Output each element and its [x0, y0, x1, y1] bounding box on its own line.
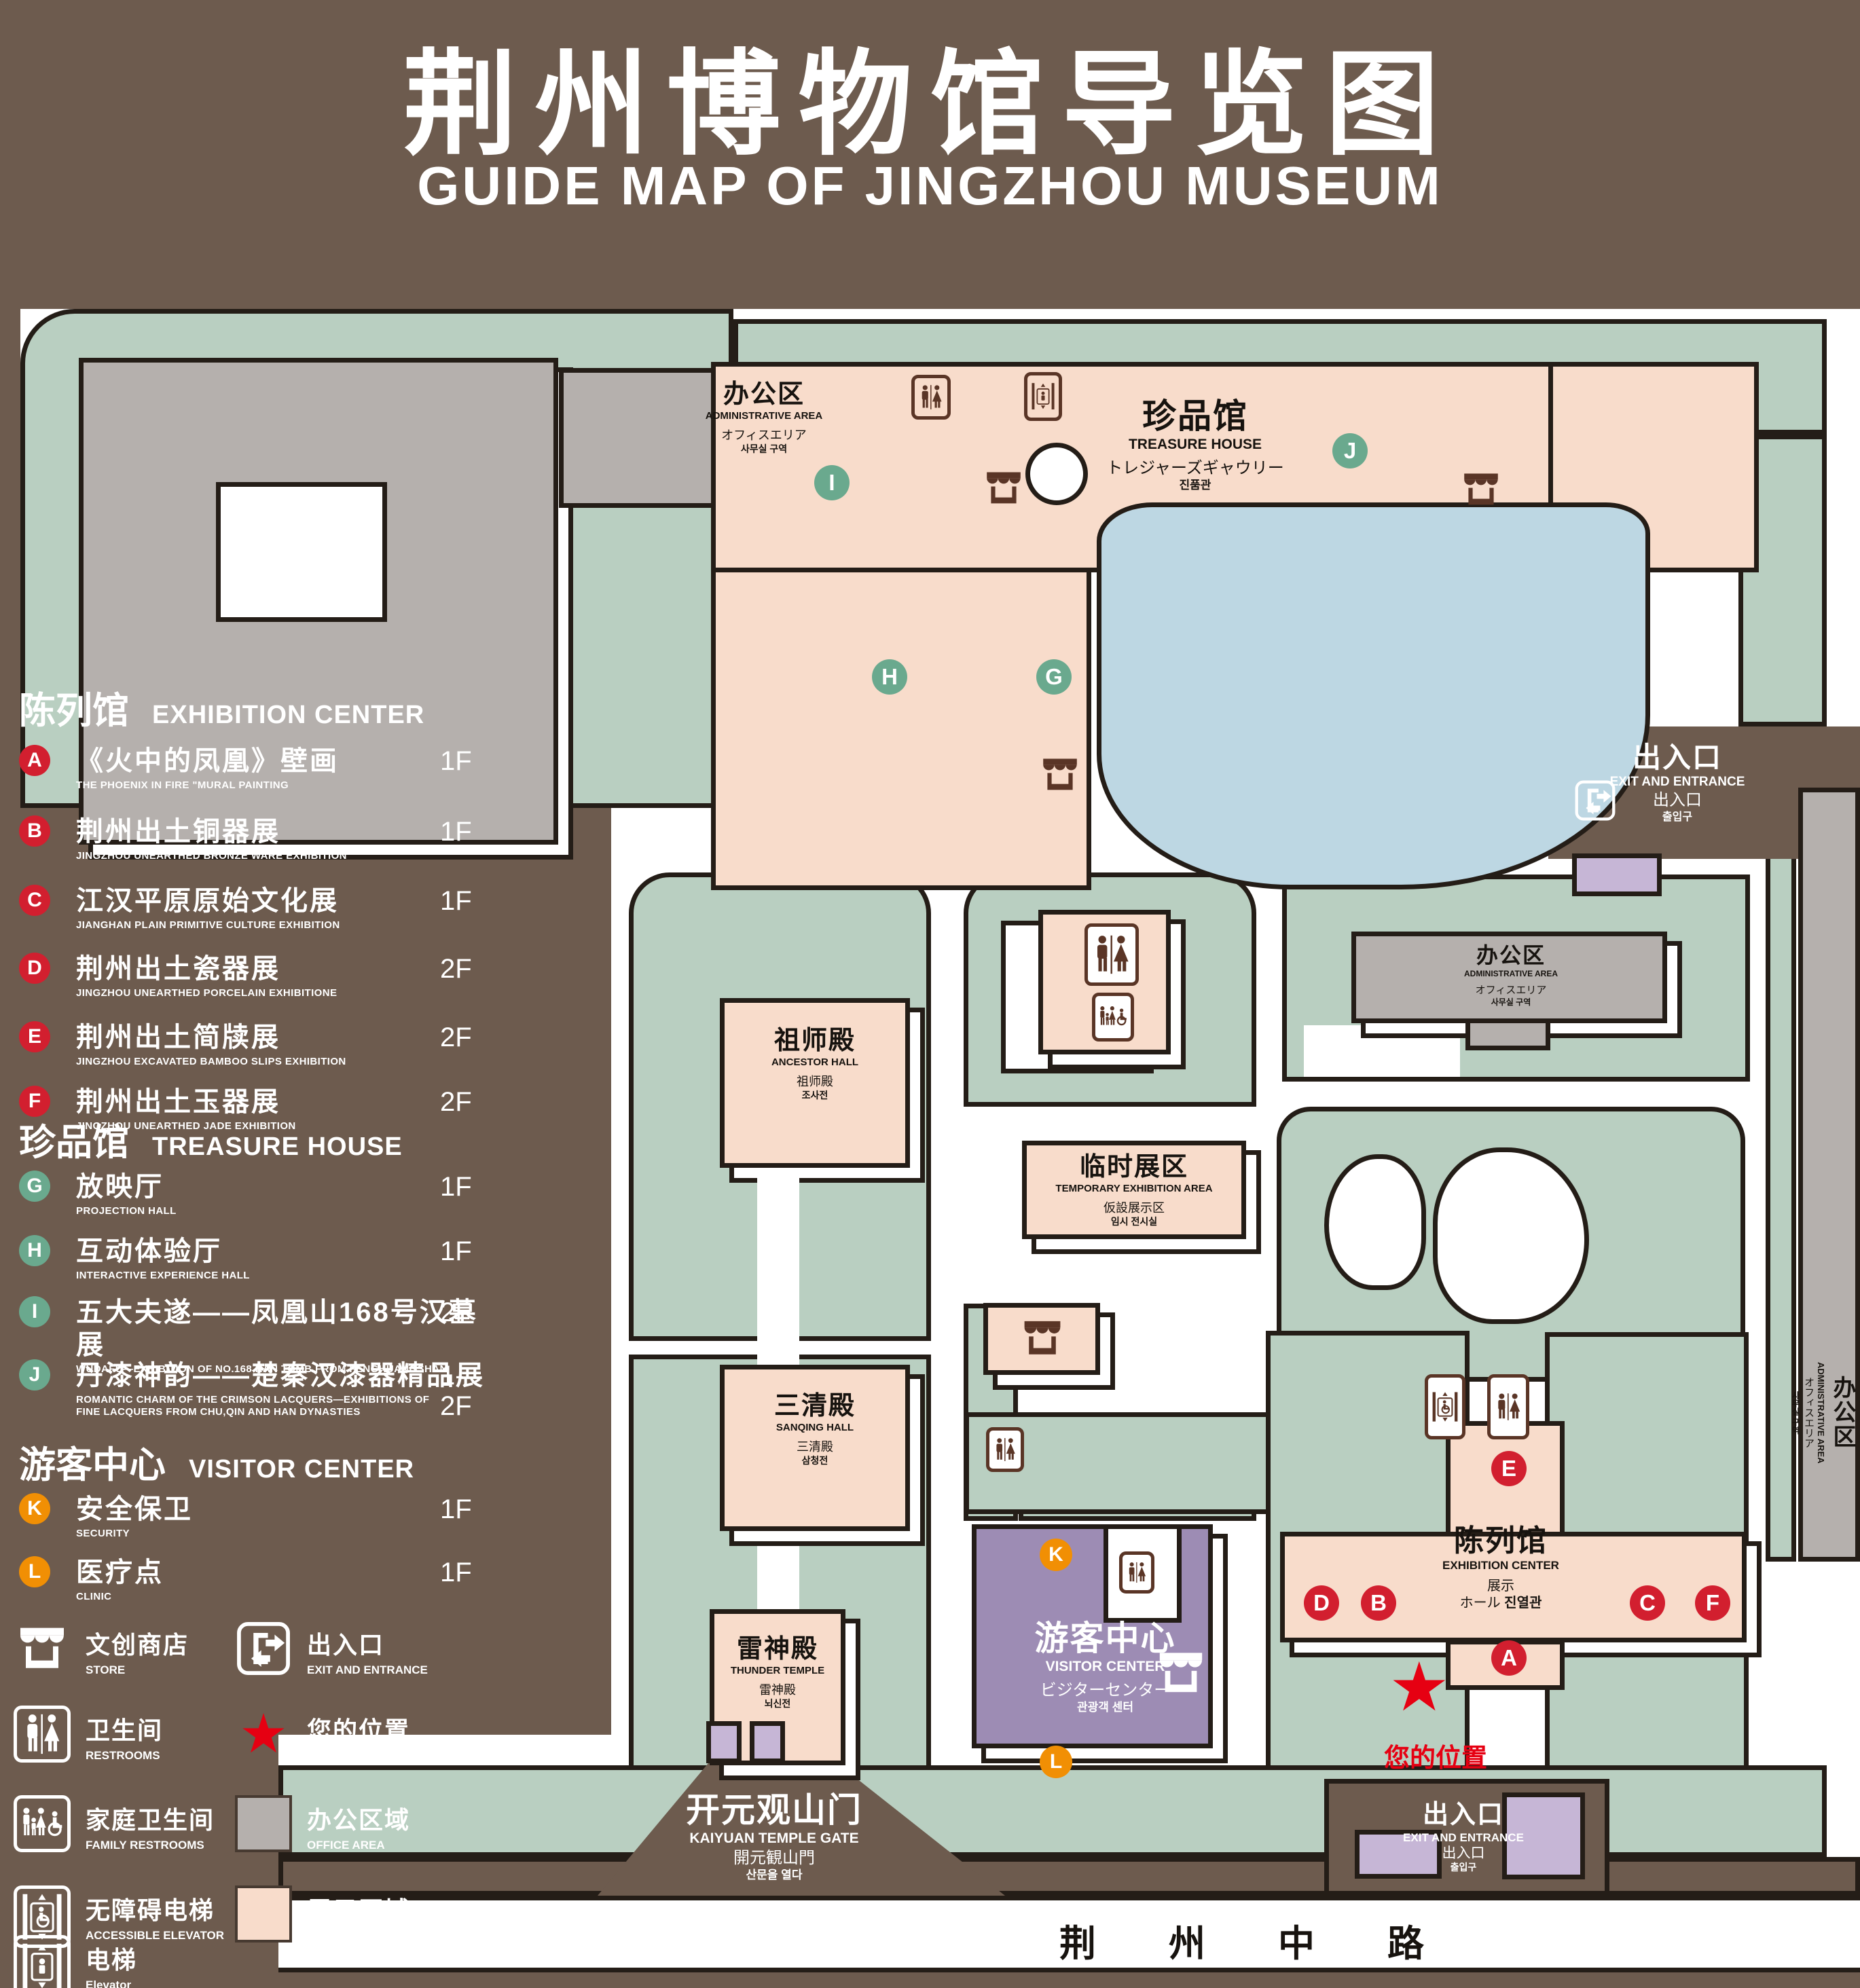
- exit-icon: [235, 1620, 292, 1677]
- lawn-admin-mid-courtyard: [1304, 1025, 1460, 1077]
- legend-item-G: G 放映厅PROJECTION HALL 1F: [19, 1171, 494, 1217]
- map-marker-K: K: [1040, 1539, 1072, 1571]
- legend-item-E: E 荆州出土简牍展JINGZHOU EXCAVATED BAMBOO SLIPS…: [19, 1021, 494, 1068]
- map-marker-G: G: [1036, 659, 1072, 695]
- restroom-icon: [986, 1427, 1024, 1472]
- family-restroom-icon: [14, 1795, 71, 1852]
- restroom-icon: [911, 375, 951, 420]
- lake: [1097, 502, 1650, 889]
- exit-ne-building: [1572, 853, 1662, 896]
- map-marker-I: I: [814, 465, 850, 500]
- your-location-star-icon: ★: [1389, 1653, 1450, 1721]
- admin-mid-label: 办公区 ADMINISTRATIVE AREA オフィスエリア 사무실 구역: [1416, 944, 1606, 1008]
- page-subtitle: GUIDE MAP OF JINGZHOU MUSEUM: [0, 155, 1860, 217]
- exhibition-center-label: 陈列馆 EXHIBITION CENTER 展示 ホール 진열관: [1409, 1524, 1592, 1610]
- legend-symbol-exit: 出入口EXIT AND ENTRANCE: [235, 1620, 428, 1677]
- ancestor-hall-label: 祖师殿 ANCESTOR HALL 祖师殿 조사전: [730, 1027, 900, 1101]
- temporary-exhibition-label: 临时展区 TEMPORARY EXHIBITION AREA 仮設展示区 임시 …: [1029, 1153, 1239, 1227]
- store-icon: [1460, 468, 1502, 513]
- map-marker-C: C: [1630, 1585, 1665, 1621]
- admin-right-label: 办公区 ADMINISTRATIVE AREA オフィスエリア 사무실 구역: [1800, 1222, 1859, 1602]
- sanqing-hall-label: 三清殿 SANQING HALL 三清殿 삼청전: [730, 1392, 900, 1466]
- legend-section-exhibition-center: 陈列馆EXHIBITION CENTER: [19, 680, 424, 734]
- family-restroom-icon: [1092, 993, 1134, 1042]
- restroom-icon: [1084, 923, 1139, 986]
- map-marker-B: B: [1361, 1585, 1396, 1621]
- display-area-swatch: [235, 1885, 292, 1943]
- page-title: 荆州博物馆导览图: [0, 12, 1860, 177]
- restroom-icon: [14, 1706, 71, 1763]
- accessible-elevator-icon: [1425, 1374, 1465, 1439]
- store-icon: [983, 467, 1025, 512]
- restroom-icon: [1119, 1551, 1154, 1594]
- legend-item-K: K 安全保卫SECURITY 1F: [19, 1493, 494, 1540]
- legend-symbol-office-area: 办公区域OFFICE AREA: [235, 1795, 410, 1852]
- admin-nw-label: 办公区 ADMINISTRATIVE AREA オフィスエリア 사무실 구역: [672, 380, 856, 454]
- store-icon: [14, 1620, 71, 1677]
- gate-pillar-east: [750, 1721, 785, 1763]
- legend-symbol-elevator: 电梯Elevator: [14, 1935, 137, 1988]
- thunder-temple-label: 雷神殿 THUNDER TEMPLE 雷神殿 뇌신전: [716, 1635, 839, 1709]
- exit-ne-label: 出入口 EXIT AND ENTRANCE 出入口 출입구: [1592, 741, 1762, 824]
- legend-symbol-store: 文创商店STORE: [14, 1620, 189, 1677]
- guide-map-poster: 荆州博物馆导览图 GUIDE MAP OF JINGZHOU MUSEUM: [0, 0, 1860, 1988]
- legend-item-L: L 医疗点CLINIC 1F: [19, 1556, 494, 1603]
- legend-symbol-your-location: 您的位置YOUR LOCATION: [235, 1706, 410, 1763]
- legend-item-J: J 丹漆神韵——楚秦汉漆器精品展ROMANTIC CHARM OF THE CR…: [19, 1359, 494, 1418]
- map-marker-H: H: [872, 659, 907, 695]
- store-icon: [1154, 1646, 1207, 1704]
- map-marker-J: J: [1332, 433, 1368, 468]
- legend-item-D: D 荆州出土瓷器展JINGZHOU UNEARTHED PORCELAIN EX…: [19, 953, 494, 999]
- legend-symbol-restrooms: 卫生间RESTROOMS: [14, 1706, 163, 1763]
- your-location-label: 您的位置: [1384, 1737, 1487, 1774]
- map-marker-E: E: [1491, 1451, 1527, 1486]
- south-brown-band: [278, 1857, 1860, 1896]
- gate-pillar-west: [706, 1721, 742, 1763]
- admin-nw-courtyard: [216, 482, 387, 622]
- exit-s-label: 出入口 EXIT AND ENTRANCE 出入口 출입구: [1379, 1801, 1548, 1873]
- admin-mid-tab: [1465, 1018, 1550, 1050]
- legend-item-B: B 荆州出土铜器展JINGZHOU UNEARTHED BRONZE WARE …: [19, 815, 494, 862]
- legend-item-A: A 《火中的凤凰》壁画THE PHOENIX IN FIRE "MURAL PA…: [19, 745, 494, 792]
- road-label: 荆 州 中 路: [1059, 1913, 1455, 1967]
- legend-item-C: C 江汉平原原始文化展JIANGHAN PLAIN PRIMITIVE CULT…: [19, 885, 494, 932]
- gate-label: 开元观山门 KAIYUAN TEMPLE GATE 開元観山門 산문을 열다: [608, 1791, 941, 1881]
- exit-icon: [1574, 779, 1616, 822]
- legend-symbol-family-restrooms: 家庭卫生间FAMILY RESTROOMS: [14, 1795, 215, 1852]
- store-icon: [1039, 754, 1081, 798]
- store-icon: [1020, 1316, 1065, 1363]
- elevator-icon: [14, 1935, 71, 1988]
- location-star-icon: [235, 1706, 292, 1763]
- office-area-swatch: [235, 1795, 292, 1852]
- legend-item-H: H 互动体验厅INTERACTIVE EXPERIENCE HALL 1F: [19, 1235, 494, 1282]
- legend-symbol-display-area: 展示区域DISPLAY AREA: [235, 1885, 410, 1943]
- map-marker-A: A: [1491, 1640, 1527, 1676]
- elevator-icon: [1024, 372, 1062, 421]
- map-marker-F: F: [1695, 1585, 1730, 1621]
- legend-section-visitor-center: 游客中心VISITOR CENTER: [19, 1435, 414, 1488]
- map-marker-L: L: [1040, 1746, 1072, 1778]
- legend-section-treasure-house: 珍品馆TREASURE HOUSE: [19, 1112, 403, 1166]
- restroom-icon: [1487, 1374, 1529, 1439]
- map-marker-D: D: [1304, 1585, 1339, 1621]
- treasure-house-label: 珍品馆 TREASURE HOUSE トレジャーズギャウリー 진품관: [1066, 397, 1324, 492]
- garden-pond-small: [1324, 1154, 1426, 1290]
